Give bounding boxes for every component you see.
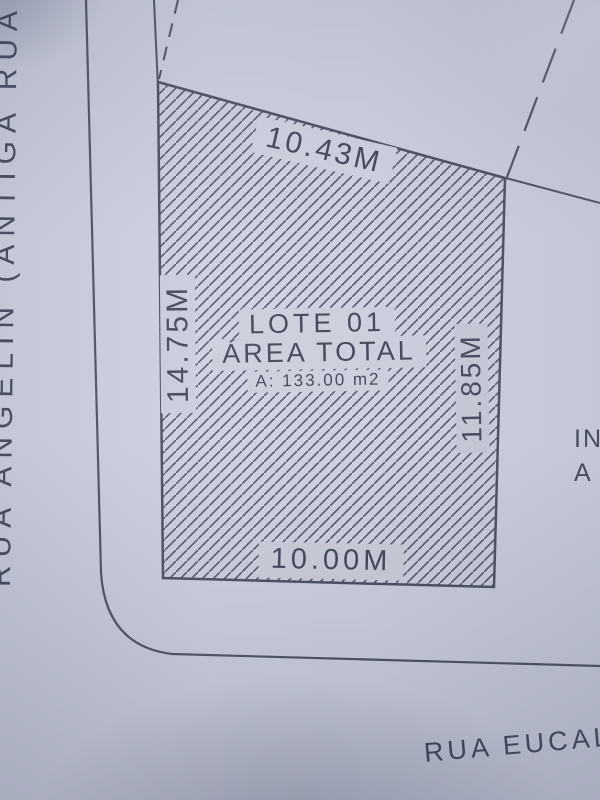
dimension-left-label: 14.75M <box>160 275 196 413</box>
lot-area-value: A: 133.00 m2 <box>247 369 388 392</box>
adjacent-text-line2: A <box>574 460 593 488</box>
dashed-boundary-topleft <box>159 0 178 79</box>
dimension-bottom-label: 10.00M <box>258 542 403 581</box>
lot-area-title: ÁREA TOTAL <box>212 335 426 370</box>
site-plan-photo: 10.43M 14.75M 11.85M 10.00M LOTE 01 ÁREA… <box>0 0 600 800</box>
plan-linework <box>0 0 600 800</box>
property-line-extension <box>154 0 158 88</box>
dimension-right-label: 11.85M <box>454 323 489 453</box>
dashed-boundary-topright <box>504 0 574 185</box>
adjacent-text-line1: IN <box>574 426 600 454</box>
neighbor-boundary-line <box>506 178 600 203</box>
